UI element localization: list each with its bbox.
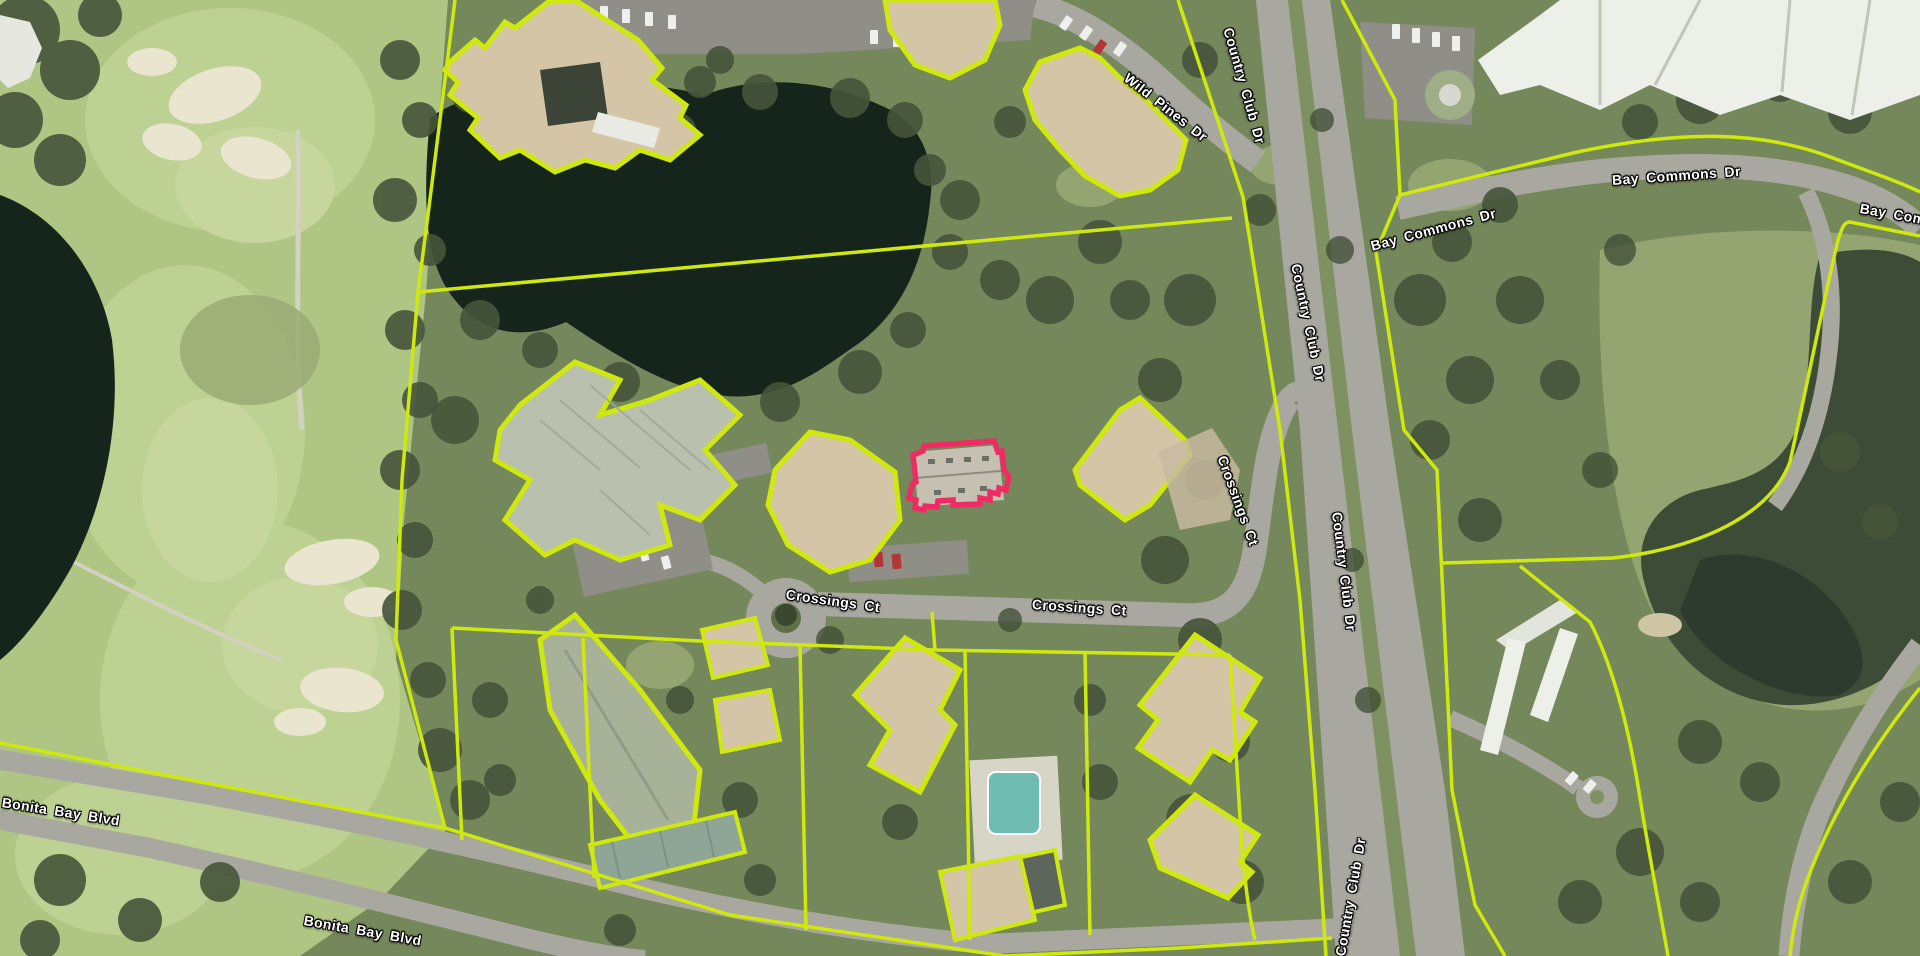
swimming-pool	[988, 772, 1040, 834]
pond-beach	[1638, 613, 1682, 637]
map-artwork	[0, 0, 1920, 956]
building-small-2	[715, 690, 780, 752]
aerial-map-canvas[interactable]: Wild Pines DrCountry Club DrCountry Club…	[0, 0, 1920, 956]
selected-parcel[interactable]	[909, 441, 1009, 510]
building-small-1	[702, 618, 768, 678]
